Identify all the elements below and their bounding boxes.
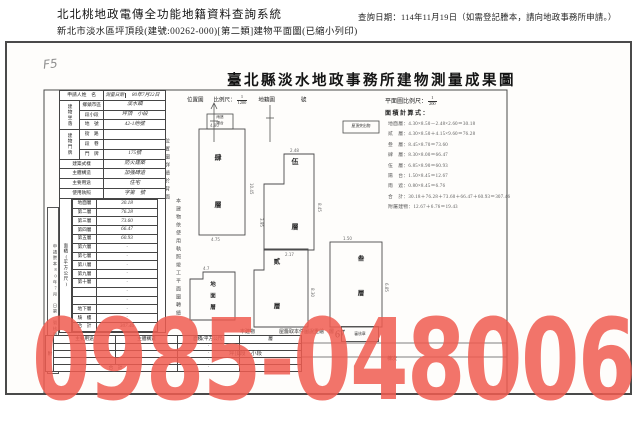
floor4-label: 肆層 (213, 154, 223, 248)
area-row: 第八層 · (73, 261, 158, 270)
plan-scale-label: 平面圖比例尺： (385, 99, 427, 105)
watermark-number: 0985-048006 (32, 304, 635, 417)
dim-label: 3.95 (259, 218, 264, 227)
location-map-label: 位置圖 (187, 98, 204, 104)
field-label: 地 號 (80, 120, 104, 130)
floor-area-value: 30.18 (97, 199, 158, 208)
floor-area-value: · (97, 243, 158, 252)
field-label: 段小段 (80, 110, 104, 120)
attr-row: 主要用途 住宅 (60, 179, 166, 189)
attr-row: 建築式樣 防火建築 (60, 159, 166, 169)
field-value: 175號 (104, 149, 166, 159)
scale-numerator: 1 (241, 94, 243, 99)
floor-label: 地面層 (73, 199, 97, 208)
area-row: 第七層 · (73, 252, 158, 261)
field-value: 淡水鎮 (104, 100, 166, 110)
field-value: 加強磚造 (104, 169, 166, 179)
floor-area-value: 66.47 (97, 226, 158, 235)
field-value (104, 130, 166, 140)
scale-fraction: 11200 (237, 95, 248, 106)
floor-label: 第四層 (73, 226, 97, 235)
plan-scale-fraction: 1200 (428, 96, 437, 107)
site-group-label: 建物坐落 (60, 100, 80, 129)
dim-label: 8.45 (317, 203, 322, 212)
field-label: 使用執照 (60, 188, 104, 198)
page: { "header": { "system_title": "北北桃地政電傳全功… (0, 0, 640, 410)
note-location-map: 位置圖詳繪於背面 (163, 138, 170, 293)
area-calc-label: 面積計算式： (385, 108, 430, 117)
location-map-header: 位置圖比例尺：11200地籍圖號 (187, 95, 306, 106)
calc-line: 合 計：30.18＋76.28＋73.60＋66.47＋60.93＝307.46 (388, 193, 593, 203)
floor-label: 第九層 (73, 270, 97, 279)
roof-box-label: 屋頂突出物 (343, 124, 379, 129)
floor5-label: 伍層 (290, 158, 300, 288)
dim-label: 6.85 (384, 283, 389, 292)
calc-line: 肆 層：8.30×8.00＝66.47 (388, 151, 593, 161)
floor-area-value: · (97, 270, 158, 279)
field-value (104, 139, 166, 149)
calc-line: 叁 層：8.45×8.70＝73.60 (388, 141, 593, 151)
field-value: 坪頂 小段 (104, 110, 166, 120)
plan-scale-denominator: 200 (428, 101, 437, 107)
floor-label: 第二層 (73, 208, 97, 217)
floor-label: 第十層 (73, 278, 97, 287)
field-label: 主體構造 (60, 169, 104, 179)
field-label: 主要用途 (60, 179, 104, 189)
area-row: 第六層 · (73, 243, 158, 252)
area-row: 第三層 73.60 (73, 217, 158, 226)
plan-scale-header: 平面圖比例尺：1200 (385, 96, 438, 107)
applicant-label: 申請人姓 名 (60, 91, 104, 101)
door-group-label: 建物門牌 (60, 130, 80, 159)
area-row: 第二層 76.28 (73, 208, 158, 217)
floor-area-value: 73.60 (97, 217, 158, 226)
area-row: 第四層 66.47 (73, 226, 158, 235)
area-row: 第十層 · (73, 278, 158, 287)
canopy-bottom-label: 陽台 (207, 121, 233, 125)
calc-line: 地面層：4.30×8.50－2.48×2.60＝30.18 (388, 120, 593, 130)
field-label: 門 牌 (80, 149, 104, 159)
survey-mark-icon (266, 105, 274, 142)
system-title: 北北桃地政電傳全功能地籍資料查詢系統 (57, 6, 282, 22)
survey-date-label: 測量日期 (104, 93, 126, 98)
field-label: 鄉鎮市區 (80, 100, 104, 110)
floor-area-value: 76.28 (97, 208, 158, 217)
scale-label: 比例尺： (214, 98, 236, 104)
area-row: 第五層 60.93 (73, 234, 158, 243)
site-row: 建物坐落 鄉鎮市區 淡水鎮 (60, 100, 166, 110)
calc-line: 伍 層：6.85×8.90＝60.93 (388, 162, 593, 172)
field-label: 建築式樣 (60, 159, 104, 169)
field-value: 42-1地號 (104, 120, 166, 130)
area-calc-lines: 地面層：4.30×8.50－2.48×2.60＝30.18貳 層：4.30×8.… (388, 120, 593, 214)
applicant-row: 申請人姓 名 測量日期 80年7月22日 (60, 91, 166, 101)
field-value: 字第 號 (104, 188, 166, 198)
query-date: 查詢日期：114年11月19日（如需登記謄本，請向地政事務所申請。） (358, 11, 617, 23)
calc-line: 貳 層：4.30×8.50＋4.15×9.60＝76.28 (388, 130, 593, 140)
floor-area-value: 60.93 (97, 234, 158, 243)
field-label: 街 路 (80, 130, 104, 140)
dim-label: 10.45 (249, 183, 254, 195)
attr-row: 使用執照 字第 號 (60, 188, 166, 198)
calc-line: 陽 台：1.50×8.45＝12.67 (388, 172, 593, 182)
area-row: 第九層 · (73, 270, 158, 279)
floor-area-value: · (97, 278, 158, 287)
floor-label: 第五層 (73, 234, 97, 243)
floor-area-value: · (97, 261, 158, 270)
field-label: 段 巷 (80, 139, 104, 149)
calc-line: 附屬建物：12.67＋6.76＝19.43 (388, 203, 593, 213)
map-number-label: 號 (301, 98, 307, 104)
field-value: 防火建築 (104, 159, 166, 169)
scale-denominator: 1200 (237, 100, 248, 106)
survey-date-value: 80年7月22日 (126, 93, 165, 98)
floor-label: 第八層 (73, 261, 97, 270)
floor-area-value: · (97, 252, 158, 261)
door-row: 建物門牌 街 路 (60, 130, 166, 140)
dim-label: 1.50 (343, 236, 352, 241)
area-row: 地面層 30.18 (73, 199, 158, 208)
plan-scale-numerator: 1 (431, 95, 433, 100)
dim-label: 2.48 (290, 148, 299, 153)
cadastral-map-label: 地籍圖 (258, 98, 275, 104)
attr-row: 主體構造 加強磚造 (60, 169, 166, 179)
dim-label: 4.7 (203, 266, 210, 271)
field-value: 住宅 (104, 179, 166, 189)
floor-label: 第六層 (73, 243, 97, 252)
floor5-outline (264, 154, 314, 250)
canopy-top-label: 雨遮 (207, 115, 233, 119)
calc-line: 雨 遮：0.80×8.45＝6.76 (388, 182, 593, 192)
floor-label: 第三層 (73, 217, 97, 226)
document-subtitle: 新北市淡水區坪頂段(建號:00262-000)[第二類]建物平面圖(已縮小列印) (57, 23, 358, 37)
floor-label: 第七層 (73, 252, 97, 261)
